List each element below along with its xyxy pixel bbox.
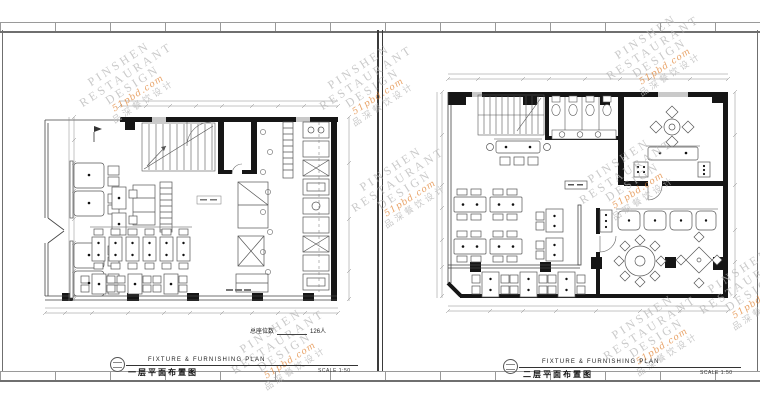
sheet-title-cn: 二层平面布置图 [523,369,593,380]
left-plan [43,101,351,315]
title-rule [126,365,358,366]
note-underline [277,329,307,335]
title-stamp-icon [110,357,125,372]
right-plan [437,74,737,313]
title-stamp-icon [503,359,518,374]
seat-count-label: 总座位数 [250,326,274,335]
floorplan-linework [0,0,760,412]
title-rule [519,367,741,368]
sheet-title-en: FIXTURE & FURNISHING PLAN [542,359,660,365]
sheet-scale: SCALE 1:50 [700,370,733,376]
drawing-canvas: PINSHEN RESTAURANT DESIGN 51pbd.com 品深餐饮… [0,0,760,412]
seat-count-note: 总座位数 126人 [250,326,326,335]
sheet-scale: SCALE 1:50 [318,368,351,374]
sheet-title-cn: 一层平面布置图 [128,367,198,378]
seat-count-value: 126人 [310,326,326,335]
sheet-title-en: FIXTURE & FURNISHING PLAN [148,357,266,363]
